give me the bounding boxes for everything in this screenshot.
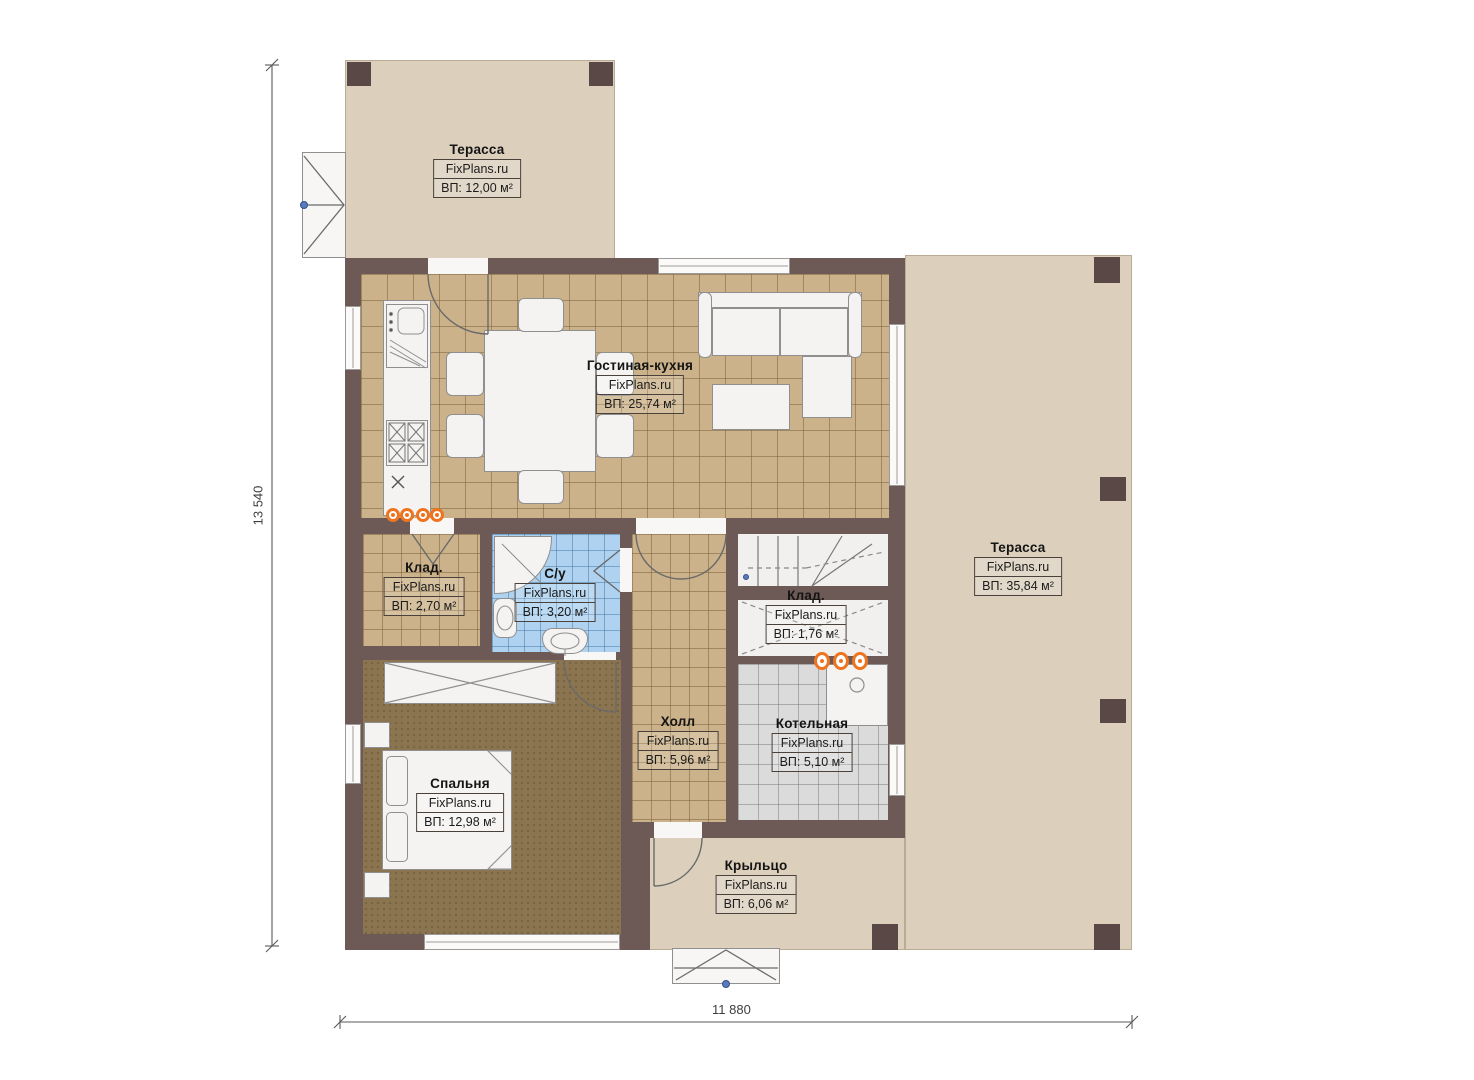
chair: [446, 352, 484, 396]
entry-marker-icon: [300, 201, 308, 209]
nightstand: [364, 722, 390, 748]
room-area: ВП: 5,10 м²: [773, 752, 852, 771]
room-area: ВП: 6,06 м²: [717, 894, 796, 913]
sofa-seat: [712, 308, 780, 356]
brand-watermark: FixPlans.ru: [975, 558, 1061, 576]
dimension-width: 11 880: [712, 1002, 751, 1017]
room-label-porch: Крыльцо FixPlans.ru ВП: 6,06 м²: [716, 858, 797, 914]
room-name: Холл: [638, 714, 719, 729]
terrace-steps: [302, 152, 346, 258]
column: [589, 62, 613, 86]
bedroom-bottom-window: [424, 934, 620, 950]
kitchen-stove: [386, 420, 428, 466]
coffee-table: [712, 384, 790, 430]
label-box: FixPlans.ru ВП: 35,84 м²: [974, 557, 1062, 596]
label-box: FixPlans.ru ВП: 12,00 м²: [433, 159, 521, 198]
label-box: FixPlans.ru ВП: 3,20 м²: [515, 583, 596, 622]
label-box: FixPlans.ru ВП: 2,70 м²: [384, 577, 465, 616]
boiler-window: [889, 744, 905, 796]
pillow: [386, 756, 408, 806]
room-name: Крыльцо: [716, 858, 797, 873]
brand-watermark: FixPlans.ru: [385, 578, 464, 596]
bedroom-left-window: [345, 724, 361, 784]
dining-table: [484, 330, 596, 472]
radiator-icon: [386, 508, 400, 522]
wardrobe: [384, 662, 556, 704]
sofa-arm: [848, 292, 862, 358]
hall-living-opening: [636, 518, 726, 534]
bath-sink: [542, 628, 588, 654]
room-area: ВП: 35,84 м²: [975, 576, 1061, 595]
brand-watermark: FixPlans.ru: [516, 584, 595, 602]
room-area: ВП: 3,20 м²: [516, 602, 595, 621]
kitchen-sink: [386, 304, 428, 368]
room-label-hall: Холл FixPlans.ru ВП: 5,96 м²: [638, 714, 719, 770]
brand-watermark: FixPlans.ru: [417, 794, 503, 812]
room-name: Спальня: [416, 776, 504, 791]
room-name: Гостиная-кухня: [587, 358, 693, 373]
terrace-door-opening: [428, 258, 488, 274]
radiator-icon: [852, 652, 868, 670]
room-name: Клад.: [384, 560, 465, 575]
label-box: FixPlans.ru ВП: 12,98 м²: [416, 793, 504, 832]
room-area: ВП: 1,76 м²: [767, 624, 846, 643]
terrace-right-area: [905, 255, 1132, 950]
brand-watermark: FixPlans.ru: [767, 606, 846, 624]
room-name: С/у: [515, 566, 596, 581]
room-label-terrace-right: Терасса FixPlans.ru ВП: 35,84 м²: [974, 540, 1062, 596]
label-box: FixPlans.ru ВП: 5,10 м²: [772, 733, 853, 772]
sofa-arm: [698, 292, 712, 358]
label-box: FixPlans.ru ВП: 1,76 м²: [766, 605, 847, 644]
sofa-chaise: [802, 356, 852, 418]
stairs-marker-icon: [743, 574, 749, 580]
room-name: Терасса: [974, 540, 1062, 555]
room-label-storage-left: Клад. FixPlans.ru ВП: 2,70 м²: [384, 560, 465, 616]
radiator-icon: [400, 508, 414, 522]
radiator-icon: [430, 508, 444, 522]
radiator-icon: [416, 508, 430, 522]
room-area: ВП: 12,00 м²: [434, 178, 520, 197]
nightstand: [364, 872, 390, 898]
chair: [518, 298, 564, 332]
brand-watermark: FixPlans.ru: [434, 160, 520, 178]
kitchen-window: [345, 306, 361, 370]
porch-steps: [672, 948, 780, 984]
column: [1094, 924, 1120, 950]
brand-watermark: FixPlans.ru: [639, 732, 718, 750]
column: [872, 924, 898, 950]
room-area: ВП: 5,96 м²: [639, 750, 718, 769]
brand-watermark: FixPlans.ru: [717, 876, 796, 894]
radiator-icon: [814, 652, 830, 670]
room-label-bedroom: Спальня FixPlans.ru ВП: 12,98 м²: [416, 776, 504, 832]
room-name: Клад.: [766, 588, 847, 603]
column: [1100, 477, 1126, 501]
room-name: Терасса: [433, 142, 521, 157]
living-top-window: [658, 258, 790, 274]
toilet: [493, 598, 517, 638]
stairs-floor: [738, 534, 888, 586]
sofa-back: [698, 292, 862, 308]
label-box: FixPlans.ru ВП: 5,96 м²: [638, 731, 719, 770]
room-label-storage-under-stairs: Клад. FixPlans.ru ВП: 1,76 м²: [766, 588, 847, 644]
pillow: [386, 812, 408, 862]
column: [1100, 699, 1126, 723]
floor-plan: 13 540 11 880 Терасса FixPlans.ru ВП: 12…: [0, 0, 1474, 1080]
bathroom-door-opening: [620, 548, 632, 592]
room-label-living-kitchen: Гостиная-кухня FixPlans.ru ВП: 25,74 м²: [587, 358, 693, 414]
brand-watermark: FixPlans.ru: [773, 734, 852, 752]
entry-marker-icon: [722, 980, 730, 988]
column: [1094, 257, 1120, 283]
room-area: ВП: 25,74 м²: [597, 394, 683, 413]
column: [347, 62, 371, 86]
porch-door-opening: [654, 822, 702, 838]
radiator-icon: [833, 652, 849, 670]
label-box: FixPlans.ru ВП: 25,74 м²: [596, 375, 684, 414]
label-box: FixPlans.ru ВП: 6,06 м²: [716, 875, 797, 914]
dimension-height: 13 540: [250, 486, 265, 526]
room-label-boiler-room: Котельная FixPlans.ru ВП: 5,10 м²: [772, 716, 853, 772]
room-label-bathroom: С/у FixPlans.ru ВП: 3,20 м²: [515, 566, 596, 622]
chair: [446, 414, 484, 458]
brand-watermark: FixPlans.ru: [597, 376, 683, 394]
chair: [518, 470, 564, 504]
room-name: Котельная: [772, 716, 853, 731]
living-right-window: [889, 324, 905, 486]
sofa-seat: [780, 308, 848, 356]
hall-floor: [632, 534, 726, 822]
chair: [596, 414, 634, 458]
room-area: ВП: 12,98 м²: [417, 812, 503, 831]
room-label-terrace-top: Терасса FixPlans.ru ВП: 12,00 м²: [433, 142, 521, 198]
room-area: ВП: 2,70 м²: [385, 596, 464, 615]
